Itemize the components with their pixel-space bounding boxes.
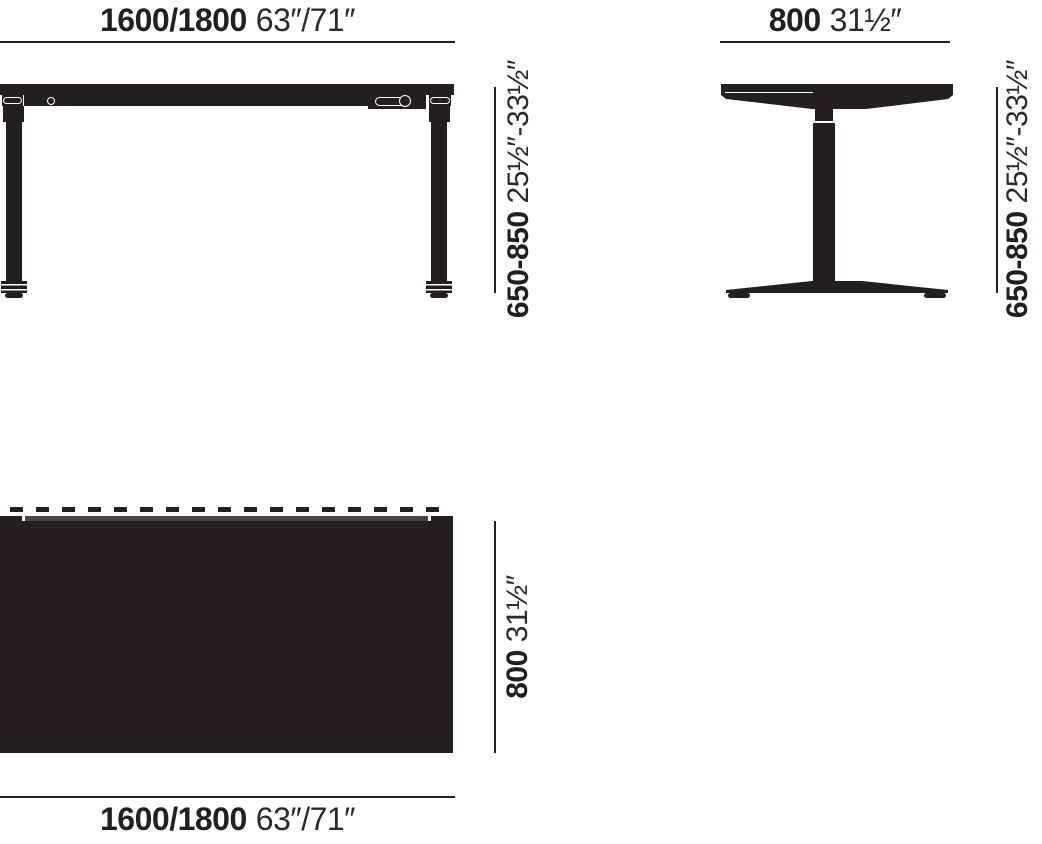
side-pedestal-base (726, 281, 948, 293)
front-tabletop (0, 84, 454, 95)
side-depth-dimension-label: 80031½″ (720, 1, 950, 39)
front-left-glide (5, 293, 23, 298)
side-height-metric-value: 650-850 (1001, 211, 1034, 318)
side-depth-dimension-line (720, 41, 950, 43)
front-right-glide (430, 293, 448, 298)
front-right-leg-bracket (429, 95, 451, 106)
front-height-metric-value: 650-850 (502, 211, 535, 318)
top-depth-dimension-label: 80031½″ (501, 575, 535, 699)
top-view-segmented-edge (10, 507, 450, 512)
front-height-imperial-value: 25½″-33½″ (502, 60, 535, 204)
front-apron-screw-icon (47, 97, 55, 105)
side-column-collar (815, 108, 833, 121)
front-width-imperial-value: 63″/71″ (256, 2, 355, 38)
front-right-leg-column (431, 122, 447, 281)
side-rear-glide (924, 293, 946, 298)
side-height-dimension-label: 650-85025½″-33½″ (1001, 60, 1035, 318)
top-depth-metric-value: 800 (501, 650, 534, 699)
side-depth-imperial-value: 31½″ (830, 2, 902, 38)
front-right-leg-collar (429, 106, 450, 122)
side-underframe-wedge (721, 95, 953, 110)
side-height-dimension-line (996, 87, 998, 293)
front-height-dimension-label: 650-85025½″-33½″ (502, 60, 536, 318)
side-front-glide (728, 293, 750, 298)
front-left-foot (1, 281, 27, 293)
front-height-dimension-line (494, 87, 496, 293)
top-width-imperial-value: 63″/71″ (256, 801, 355, 837)
top-width-dimension-label: 1600/180063″/71″ (0, 800, 455, 838)
front-width-dimension-line (0, 41, 455, 43)
top-depth-imperial-value: 31½″ (501, 575, 534, 642)
front-left-bracket-slot-icon (3, 97, 22, 104)
side-tabletop (721, 84, 953, 95)
front-left-leg-collar (3, 106, 24, 122)
front-crank-knob-icon (399, 95, 411, 107)
front-right-foot (426, 281, 452, 293)
front-width-dimension-label: 1600/180063″/71″ (0, 1, 455, 39)
front-width-metric-value: 1600/1800 (100, 2, 247, 38)
side-depth-metric-value: 800 (769, 2, 821, 38)
front-right-bracket-slot-icon (430, 97, 450, 104)
front-left-leg-column (6, 122, 22, 281)
front-left-leg-bracket (2, 95, 23, 106)
dimension-drawing-sheet: 1600/180063″/71″ 650-85025½″-33½″ 80031½… (0, 0, 1042, 844)
side-height-imperial-value: 25½″-33½″ (1001, 60, 1034, 204)
front-apron (24, 95, 426, 106)
side-column (813, 123, 835, 281)
top-width-dimension-line (0, 796, 455, 798)
top-width-metric-value: 1600/1800 (100, 801, 247, 837)
top-depth-dimension-line (494, 521, 496, 753)
side-tabletop-edge-highlight (725, 92, 813, 93)
top-view-tabletop-surface (0, 521, 453, 753)
